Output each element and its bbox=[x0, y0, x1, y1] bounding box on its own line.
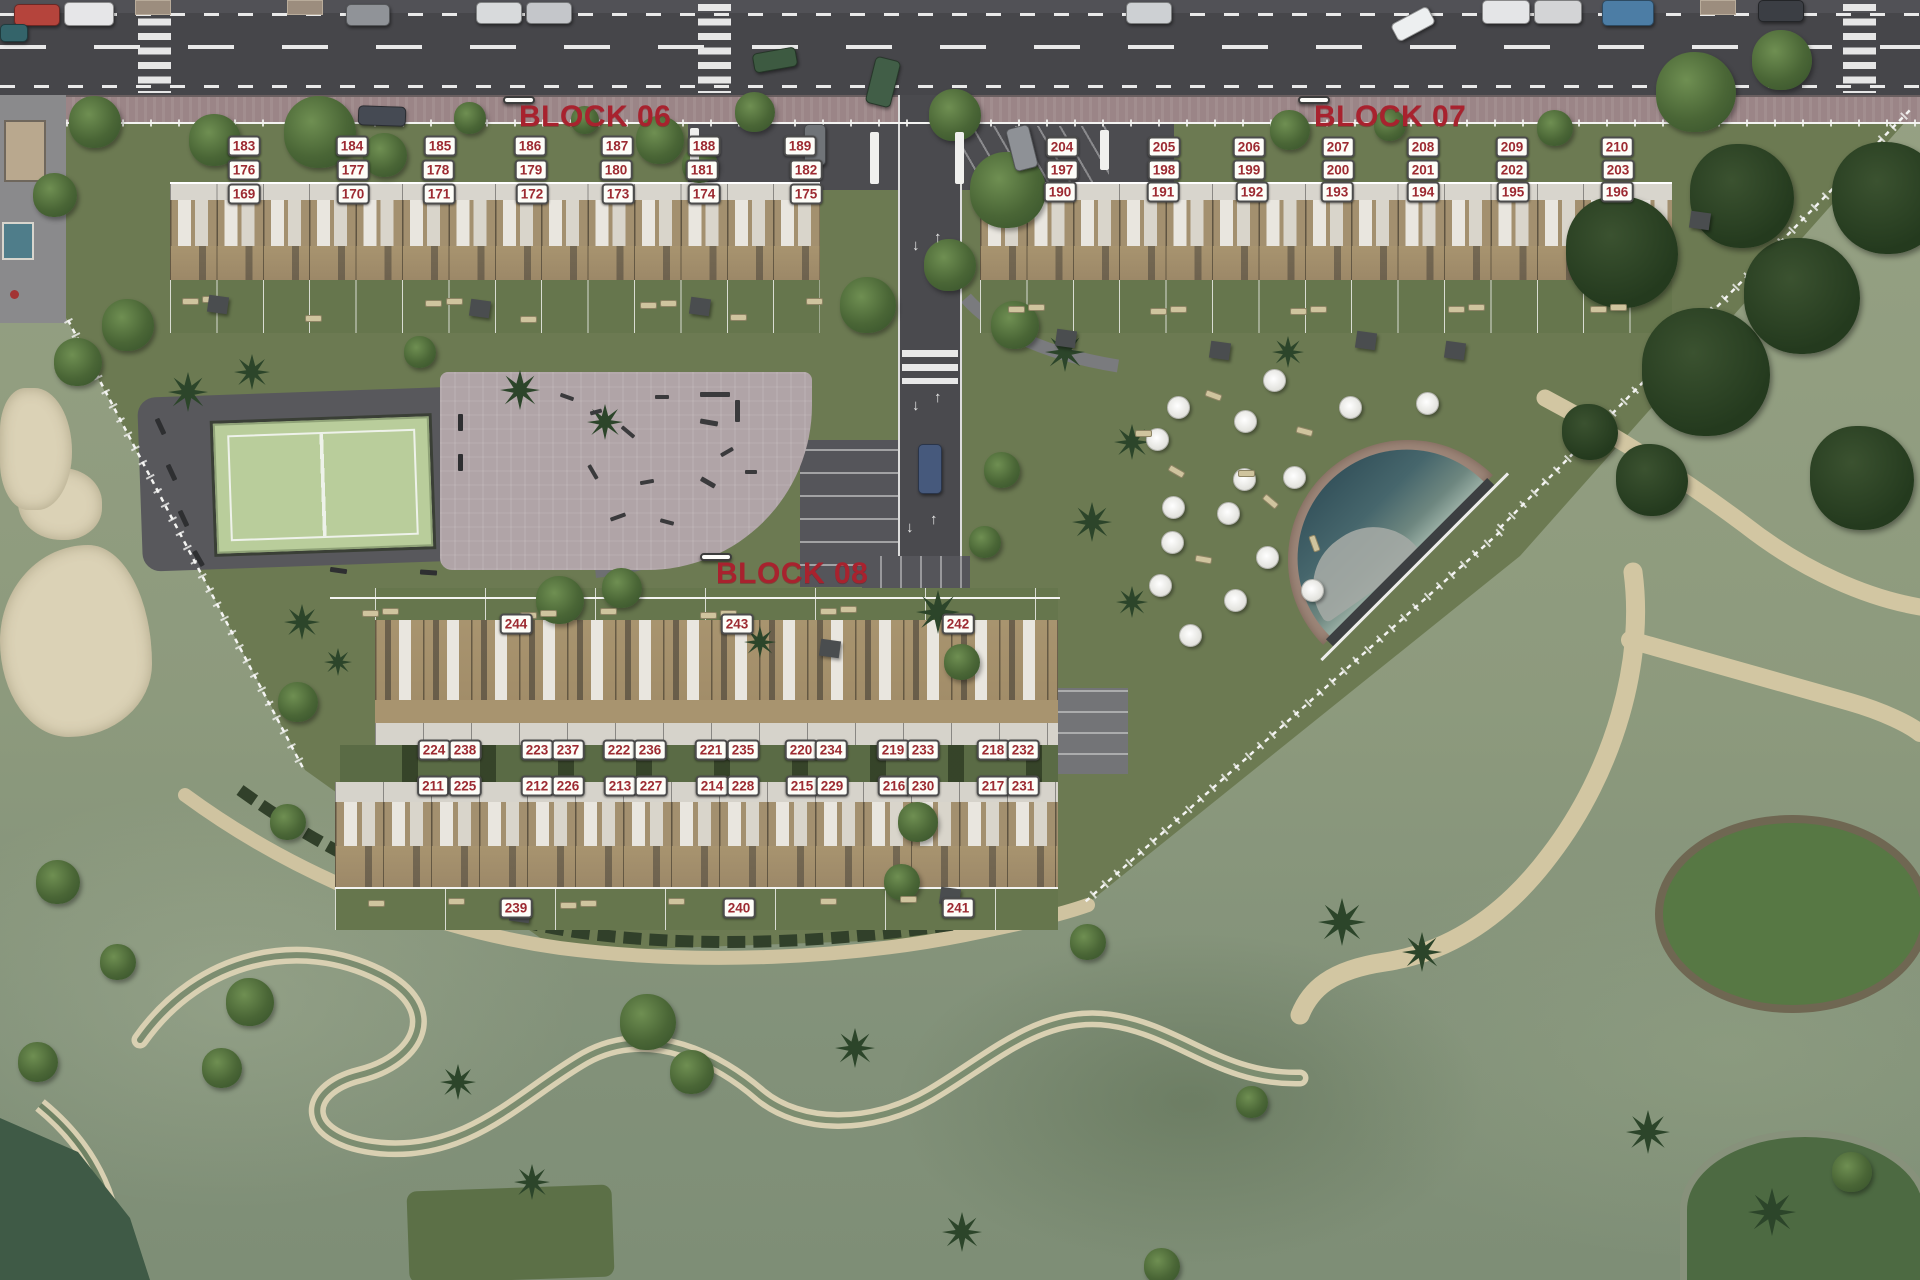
unit-label-227[interactable]: 227 bbox=[635, 776, 668, 797]
unit-label-219[interactable]: 219 bbox=[877, 740, 910, 761]
unit-label-201[interactable]: 201 bbox=[1407, 160, 1440, 181]
unit-label-197[interactable]: 197 bbox=[1046, 160, 1079, 181]
unit-label-209[interactable]: 209 bbox=[1496, 137, 1529, 158]
unit-label-242[interactable]: 242 bbox=[942, 614, 975, 635]
unit-label-216[interactable]: 216 bbox=[878, 776, 911, 797]
unit-label-181[interactable]: 181 bbox=[686, 160, 719, 181]
unit-label-244[interactable]: 244 bbox=[500, 614, 533, 635]
unit-label-221[interactable]: 221 bbox=[695, 740, 728, 761]
site-plan: ↓↑↓↑↓↑ BLOCK 061831841851861871881891761… bbox=[0, 0, 1920, 1280]
unit-label-186[interactable]: 186 bbox=[514, 136, 547, 157]
unit-label-241[interactable]: 241 bbox=[942, 898, 975, 919]
unit-label-194[interactable]: 194 bbox=[1407, 182, 1440, 203]
unit-label-196[interactable]: 196 bbox=[1601, 182, 1634, 203]
unit-label-179[interactable]: 179 bbox=[515, 160, 548, 181]
unit-label-243[interactable]: 243 bbox=[721, 614, 754, 635]
unit-label-183[interactable]: 183 bbox=[228, 136, 261, 157]
unit-label-191[interactable]: 191 bbox=[1147, 182, 1180, 203]
unit-label-225[interactable]: 225 bbox=[449, 776, 482, 797]
unit-label-213[interactable]: 213 bbox=[604, 776, 637, 797]
unit-label-211[interactable]: 211 bbox=[417, 776, 449, 797]
unit-label-240[interactable]: 240 bbox=[723, 898, 756, 919]
unit-label-231[interactable]: 231 bbox=[1007, 776, 1040, 797]
unit-label-234[interactable]: 234 bbox=[815, 740, 848, 761]
unit-label-235[interactable]: 235 bbox=[727, 740, 760, 761]
unit-label-224[interactable]: 224 bbox=[418, 740, 451, 761]
unit-label-204[interactable]: 204 bbox=[1046, 137, 1079, 158]
unit-label-215[interactable]: 215 bbox=[786, 776, 819, 797]
unit-label-220[interactable]: 220 bbox=[785, 740, 818, 761]
unit-label-208[interactable]: 208 bbox=[1407, 137, 1440, 158]
unit-label-182[interactable]: 182 bbox=[790, 160, 823, 181]
unit-label-185[interactable]: 185 bbox=[424, 136, 457, 157]
unit-label-210[interactable]: 210 bbox=[1601, 137, 1634, 158]
block-title-text: BLOCK 06 bbox=[519, 100, 671, 134]
unit-label-178[interactable]: 178 bbox=[422, 160, 455, 181]
unit-label-202[interactable]: 202 bbox=[1496, 160, 1529, 181]
block-title-block-08[interactable]: BLOCK 08 bbox=[700, 553, 732, 561]
unit-label-222[interactable]: 222 bbox=[603, 740, 636, 761]
unit-label-193[interactable]: 193 bbox=[1321, 182, 1354, 203]
unit-label-173[interactable]: 173 bbox=[602, 184, 635, 205]
unit-label-195[interactable]: 195 bbox=[1497, 182, 1530, 203]
unit-label-190[interactable]: 190 bbox=[1044, 182, 1077, 203]
unit-label-177[interactable]: 177 bbox=[337, 160, 370, 181]
unit-label-169[interactable]: 169 bbox=[228, 184, 261, 205]
unit-label-237[interactable]: 237 bbox=[552, 740, 585, 761]
unit-label-229[interactable]: 229 bbox=[816, 776, 849, 797]
unit-label-171[interactable]: 171 bbox=[423, 184, 456, 205]
unit-label-207[interactable]: 207 bbox=[1322, 137, 1355, 158]
unit-label-205[interactable]: 205 bbox=[1148, 137, 1181, 158]
unit-label-206[interactable]: 206 bbox=[1233, 137, 1266, 158]
unit-label-192[interactable]: 192 bbox=[1236, 182, 1269, 203]
block-title-block-06[interactable]: BLOCK 06 bbox=[503, 96, 535, 104]
unit-label-223[interactable]: 223 bbox=[521, 740, 554, 761]
unit-label-199[interactable]: 199 bbox=[1233, 160, 1266, 181]
unit-label-218[interactable]: 218 bbox=[977, 740, 1010, 761]
unit-label-226[interactable]: 226 bbox=[552, 776, 585, 797]
block-title-block-07[interactable]: BLOCK 07 bbox=[1298, 96, 1330, 104]
unit-label-200[interactable]: 200 bbox=[1322, 160, 1355, 181]
plan-labels: BLOCK 0618318418518618718818917617717817… bbox=[0, 0, 1920, 1280]
unit-label-203[interactable]: 203 bbox=[1602, 160, 1635, 181]
unit-label-174[interactable]: 174 bbox=[688, 184, 721, 205]
unit-label-189[interactable]: 189 bbox=[784, 136, 817, 157]
block-title-text: BLOCK 07 bbox=[1314, 100, 1466, 134]
unit-label-228[interactable]: 228 bbox=[727, 776, 760, 797]
unit-label-187[interactable]: 187 bbox=[601, 136, 634, 157]
unit-label-212[interactable]: 212 bbox=[521, 776, 554, 797]
unit-label-198[interactable]: 198 bbox=[1148, 160, 1181, 181]
unit-label-239[interactable]: 239 bbox=[500, 898, 533, 919]
unit-label-180[interactable]: 180 bbox=[600, 160, 633, 181]
unit-label-232[interactable]: 232 bbox=[1007, 740, 1040, 761]
unit-label-233[interactable]: 233 bbox=[907, 740, 940, 761]
unit-label-217[interactable]: 217 bbox=[977, 776, 1010, 797]
unit-label-214[interactable]: 214 bbox=[696, 776, 729, 797]
unit-label-238[interactable]: 238 bbox=[449, 740, 482, 761]
unit-label-188[interactable]: 188 bbox=[688, 136, 721, 157]
unit-label-176[interactable]: 176 bbox=[228, 160, 261, 181]
unit-label-184[interactable]: 184 bbox=[336, 136, 369, 157]
unit-label-236[interactable]: 236 bbox=[634, 740, 667, 761]
block-title-text: BLOCK 08 bbox=[716, 557, 868, 591]
unit-label-172[interactable]: 172 bbox=[516, 184, 549, 205]
unit-label-175[interactable]: 175 bbox=[790, 184, 823, 205]
unit-label-170[interactable]: 170 bbox=[337, 184, 370, 205]
unit-label-230[interactable]: 230 bbox=[907, 776, 940, 797]
